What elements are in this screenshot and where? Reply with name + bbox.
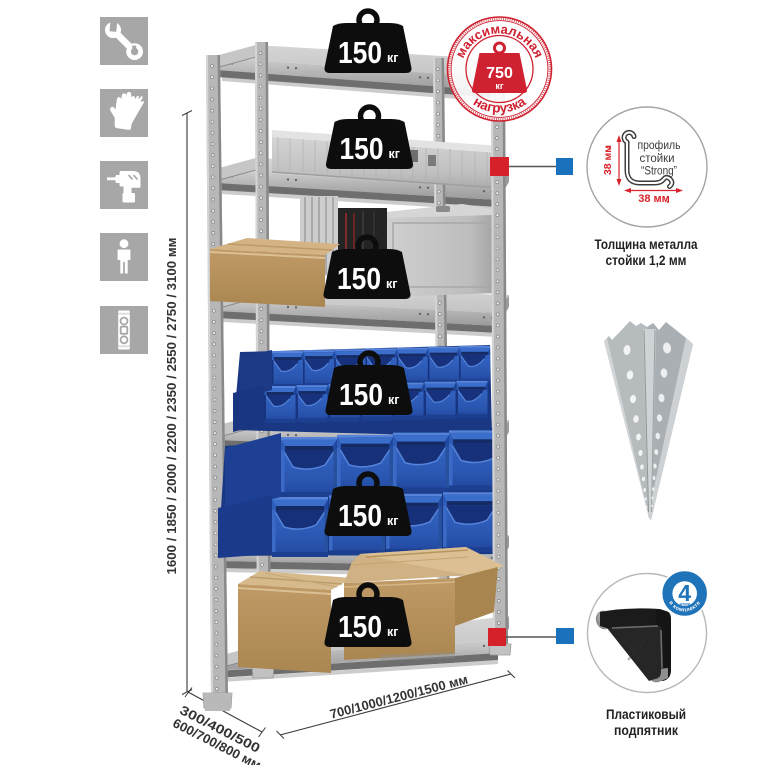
svg-text:кг: кг — [387, 625, 398, 639]
svg-text:Толщина металла: Толщина металла — [595, 236, 698, 252]
svg-text:150: 150 — [339, 377, 383, 412]
svg-text:150: 150 — [340, 131, 384, 166]
svg-text:1600 / 1850 / 2000 / 2200 / 23: 1600 / 1850 / 2000 / 2200 / 2350 / 2550 … — [164, 238, 179, 575]
svg-text:150: 150 — [338, 609, 382, 644]
svg-text:профиль: профиль — [638, 138, 681, 152]
svg-text:38 мм: 38 мм — [638, 193, 670, 205]
svg-text:750: 750 — [486, 65, 513, 82]
svg-text:стойки 1,2 мм: стойки 1,2 мм — [606, 252, 687, 268]
svg-text:кг: кг — [388, 393, 399, 407]
svg-text:Пластиковый: Пластиковый — [606, 706, 686, 722]
svg-text:150: 150 — [337, 261, 381, 296]
svg-text:подпятник: подпятник — [614, 722, 679, 738]
svg-text:“Strong”: “Strong” — [641, 164, 677, 178]
svg-text:кг: кг — [387, 51, 398, 65]
svg-text:кг: кг — [386, 277, 397, 291]
svg-text:кг: кг — [387, 514, 398, 528]
svg-text:штуки: штуки — [680, 602, 690, 606]
svg-text:150: 150 — [338, 498, 382, 533]
svg-text:38 мм: 38 мм — [602, 145, 614, 175]
svg-text:кг: кг — [389, 147, 400, 161]
svg-text:150: 150 — [338, 35, 382, 70]
svg-text:кг: кг — [495, 81, 504, 91]
